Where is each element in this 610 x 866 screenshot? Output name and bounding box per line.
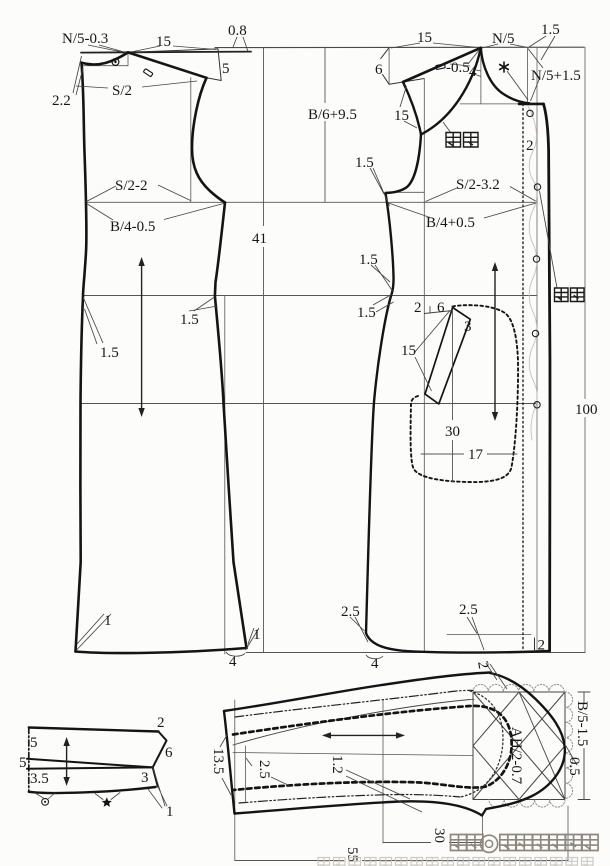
svg-text:2.5: 2.5 xyxy=(459,602,478,618)
svg-text:2: 2 xyxy=(414,300,422,316)
svg-text:0.8: 0.8 xyxy=(228,23,247,39)
svg-text:1: 1 xyxy=(253,627,261,643)
svg-text:5: 5 xyxy=(222,61,230,77)
svg-text:2.5: 2.5 xyxy=(256,760,272,779)
svg-text:5: 5 xyxy=(19,755,27,771)
svg-text:4: 4 xyxy=(229,654,237,670)
svg-text:B/4+0.5: B/4+0.5 xyxy=(426,215,475,231)
svg-text:17: 17 xyxy=(468,447,484,463)
svg-text:1.5: 1.5 xyxy=(541,22,560,38)
svg-text:1.5: 1.5 xyxy=(100,345,119,361)
svg-text:4: 4 xyxy=(469,64,477,80)
svg-text:-0.5: -0.5 xyxy=(446,60,470,76)
svg-text:2: 2 xyxy=(157,715,165,731)
svg-text:3.5: 3.5 xyxy=(30,771,49,787)
svg-text:4: 4 xyxy=(371,656,379,672)
svg-text:2.5: 2.5 xyxy=(341,604,360,620)
svg-text:15: 15 xyxy=(401,343,416,359)
svg-text:15: 15 xyxy=(156,34,171,50)
svg-text:6: 6 xyxy=(165,745,173,761)
svg-text:S/2: S/2 xyxy=(112,83,132,99)
svg-text:S/2-3.2: S/2-3.2 xyxy=(456,177,500,193)
svg-text:30: 30 xyxy=(445,424,460,440)
svg-text:6: 6 xyxy=(437,300,445,316)
svg-text:2: 2 xyxy=(538,638,546,654)
svg-text:1.2: 1.2 xyxy=(329,755,345,774)
svg-text:13.5: 13.5 xyxy=(210,748,226,774)
svg-text:B/4-0.5: B/4-0.5 xyxy=(110,219,155,235)
svg-text:1.5: 1.5 xyxy=(357,305,376,321)
svg-text:100: 100 xyxy=(575,402,598,418)
svg-text:41: 41 xyxy=(252,231,267,247)
svg-text:B/6+9.5: B/6+9.5 xyxy=(308,107,357,123)
svg-text:S/2-2: S/2-2 xyxy=(115,178,148,194)
svg-text:AH/2-0.7: AH/2-0.7 xyxy=(508,727,524,785)
svg-text:2: 2 xyxy=(526,138,534,154)
svg-text:1: 1 xyxy=(166,804,174,820)
svg-text:N/5+1.5: N/5+1.5 xyxy=(531,68,581,84)
svg-text:1: 1 xyxy=(104,613,112,629)
svg-text:1.5: 1.5 xyxy=(355,155,374,171)
svg-text:6: 6 xyxy=(375,62,383,78)
svg-text:B/5-1.5: B/5-1.5 xyxy=(574,701,590,746)
svg-text:15: 15 xyxy=(417,30,432,46)
svg-text:3: 3 xyxy=(141,770,149,786)
svg-text:2.2: 2.2 xyxy=(52,93,71,109)
svg-text:1.5: 1.5 xyxy=(359,252,378,268)
svg-text:3: 3 xyxy=(464,319,472,335)
svg-text:15: 15 xyxy=(394,108,409,124)
svg-text:55: 55 xyxy=(344,847,360,862)
svg-text:N/5-0.3: N/5-0.3 xyxy=(62,31,108,47)
svg-text:5: 5 xyxy=(30,735,38,751)
svg-text:N/5: N/5 xyxy=(492,31,515,47)
svg-text:30: 30 xyxy=(431,828,447,843)
svg-text:0.5: 0.5 xyxy=(566,757,582,776)
svg-text:1.5: 1.5 xyxy=(180,312,199,328)
